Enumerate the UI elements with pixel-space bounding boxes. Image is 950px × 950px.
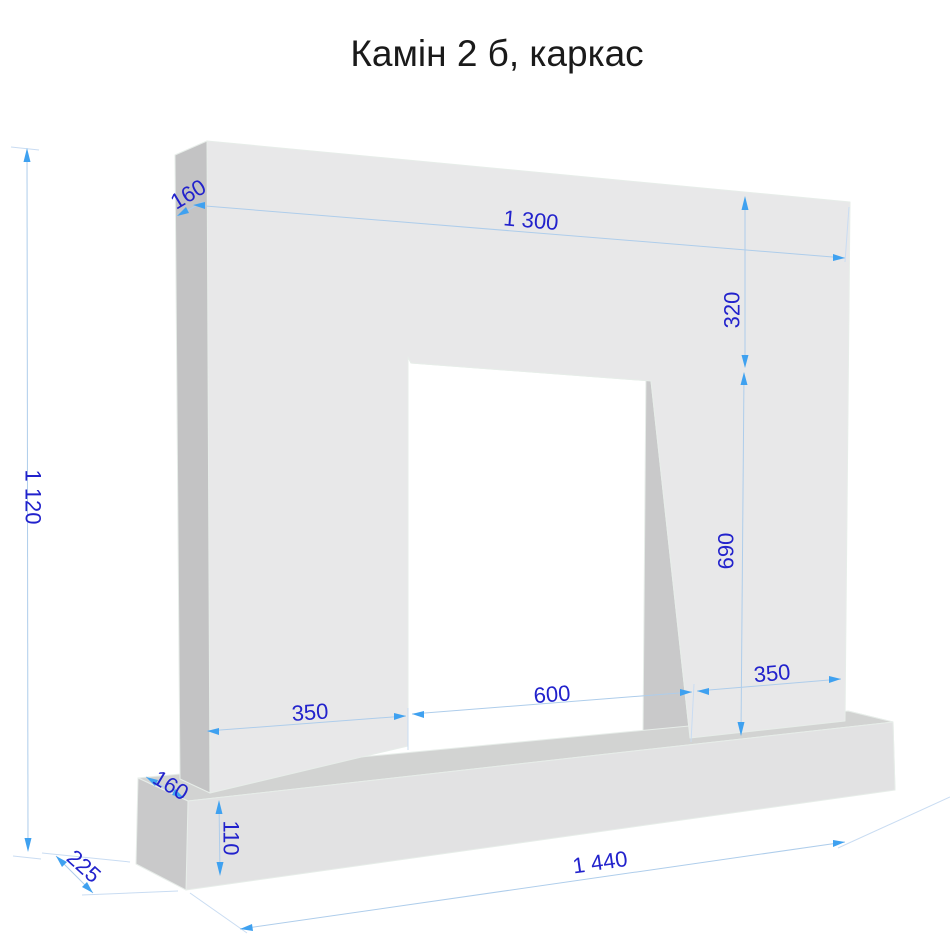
label-right-leg-width: 350 (753, 659, 792, 687)
label-base-width: 1 440 (571, 846, 629, 878)
tick-total-height-bottom (13, 856, 41, 859)
label-left-leg-width: 350 (291, 698, 329, 726)
label-total-height: 1 120 (20, 469, 45, 524)
arrow-up-icon (24, 148, 31, 162)
label-frame-width: 1 300 (502, 205, 559, 235)
frame-left-side-face (175, 141, 210, 793)
page-title: Камін 2 б, каркас (350, 33, 643, 74)
label-lintel-height: 320 (720, 292, 745, 329)
tick-total-height-top (11, 147, 39, 150)
fireplace-frame-drawing: Камін 2 б, каркас (0, 0, 950, 950)
ext-base-depth-front (82, 891, 178, 895)
label-opening-height: 690 (714, 533, 739, 570)
arrow-left-icon (412, 711, 424, 718)
ext-base-width-left (190, 893, 247, 933)
frame-front-face (207, 141, 850, 793)
label-opening-width: 600 (533, 680, 572, 708)
label-base-height: 110 (218, 820, 243, 855)
label-base-depth: 225 (62, 845, 106, 888)
arrow-down-icon (25, 838, 32, 852)
ext-base-width-right (838, 797, 950, 848)
drawing-canvas: Камін 2 б, каркас (0, 0, 950, 950)
